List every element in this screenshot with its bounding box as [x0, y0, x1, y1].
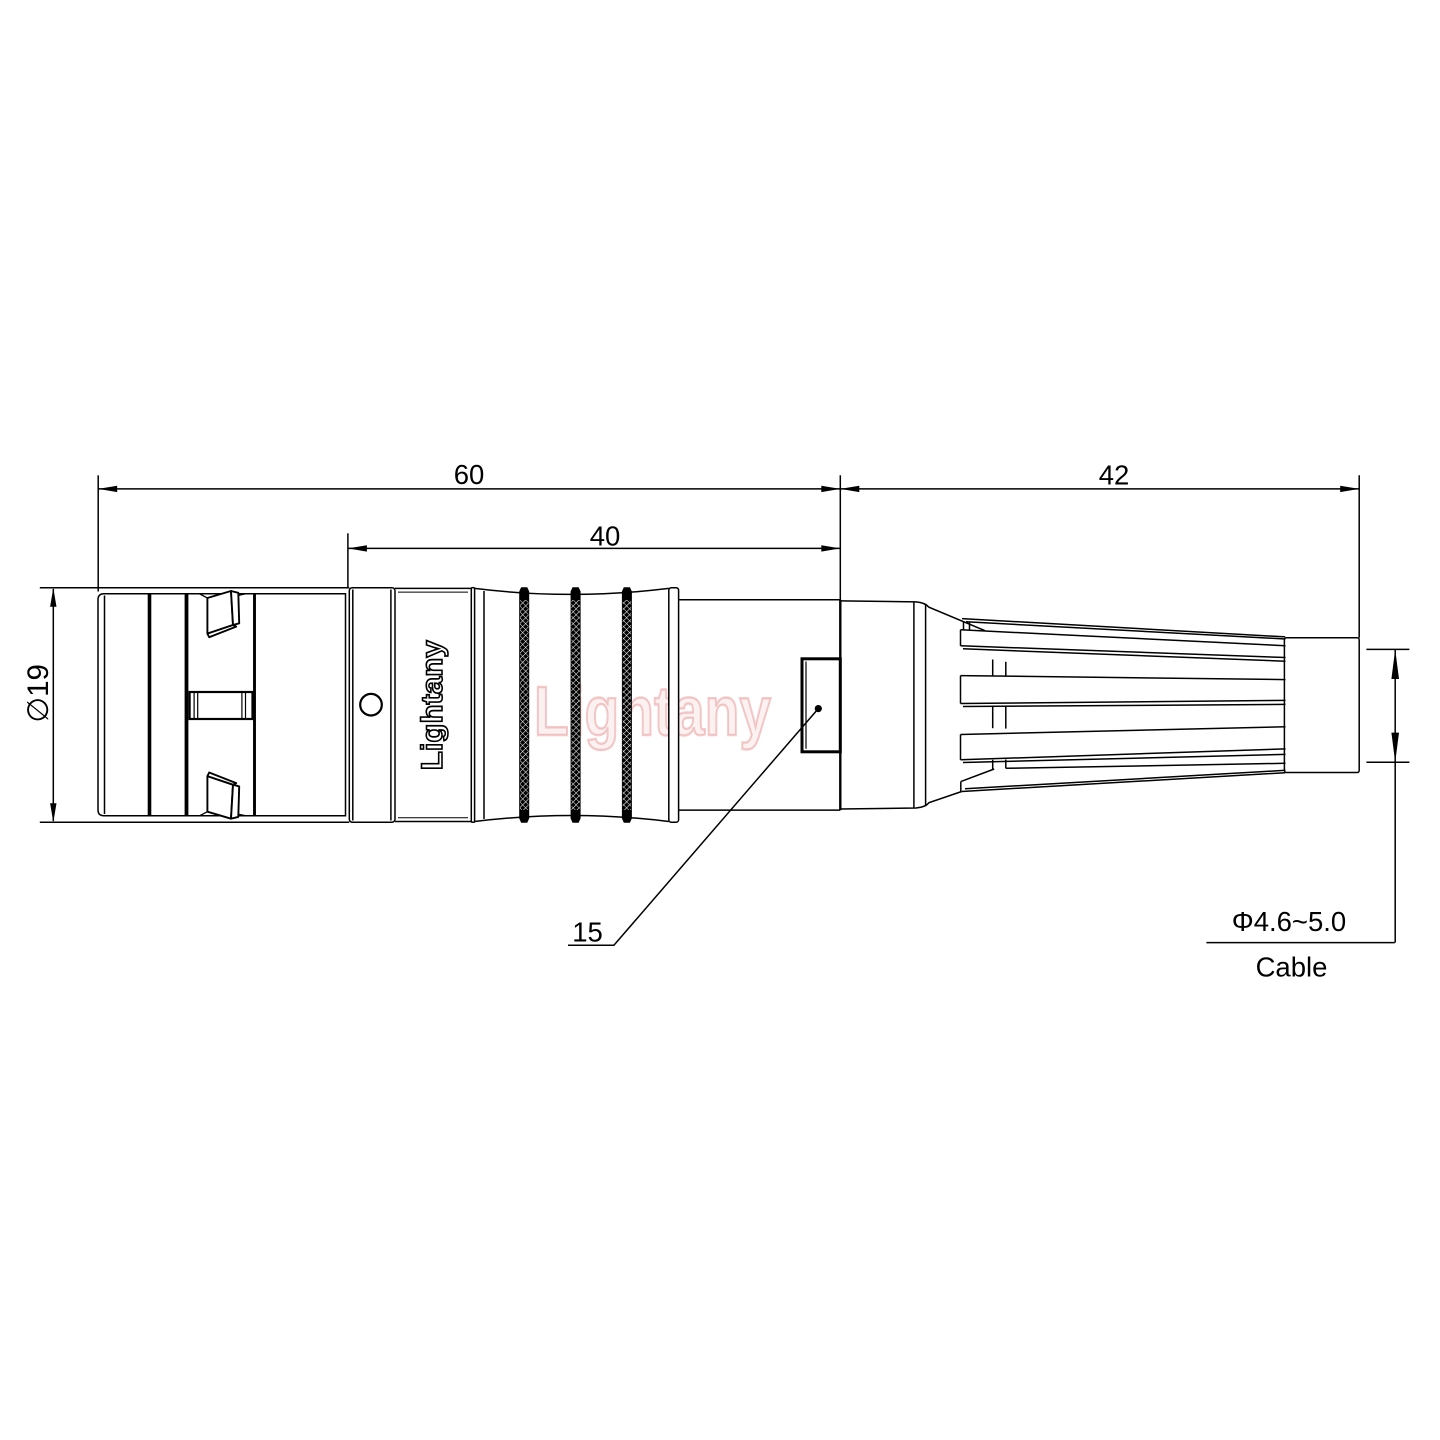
- svg-text:15: 15: [572, 917, 603, 948]
- svg-text:∅19: ∅19: [22, 664, 55, 723]
- svg-text:40: 40: [590, 520, 621, 551]
- svg-text:60: 60: [454, 459, 485, 490]
- svg-text:Lightany: Lightany: [534, 672, 771, 750]
- svg-text:42: 42: [1099, 459, 1130, 490]
- svg-text:Cable: Cable: [1256, 952, 1328, 983]
- svg-text:Φ4.6~5.0: Φ4.6~5.0: [1232, 906, 1346, 937]
- svg-text:Lightany: Lightany: [416, 640, 449, 770]
